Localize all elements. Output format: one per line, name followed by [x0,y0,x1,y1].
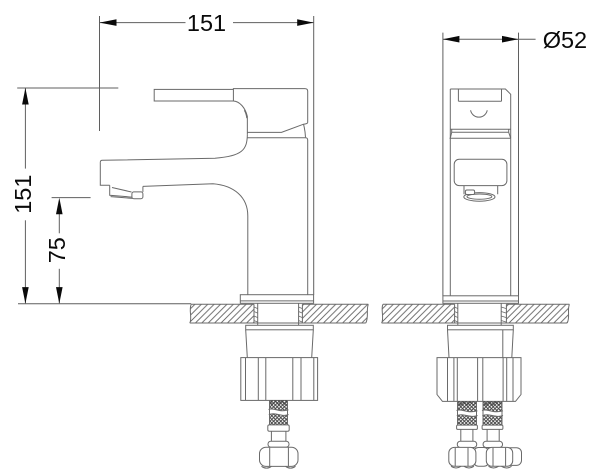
svg-text:151: 151 [10,175,36,214]
svg-text:75: 75 [44,237,70,263]
svg-text:151: 151 [187,10,226,36]
svg-text:Ø52: Ø52 [543,27,587,53]
